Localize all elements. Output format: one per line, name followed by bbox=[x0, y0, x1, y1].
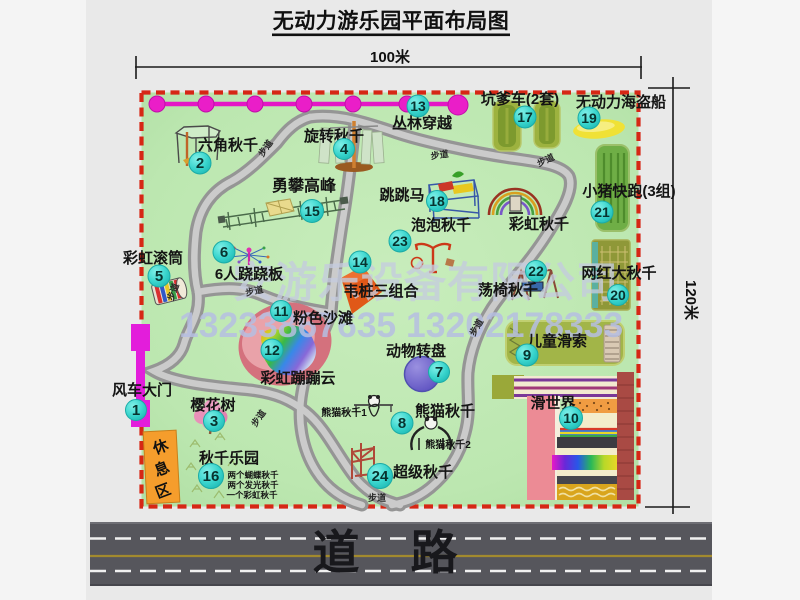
svg-text:丛林穿越: 丛林穿越 bbox=[392, 114, 453, 132]
svg-text:风车大门: 风车大门 bbox=[112, 381, 172, 399]
svg-text:熊猫秋千2: 熊猫秋千2 bbox=[425, 438, 471, 451]
svg-text:一个彩虹秋千: 一个彩虹秋千 bbox=[226, 490, 278, 500]
svg-text:荡椅秋千: 荡椅秋千 bbox=[478, 281, 538, 299]
svg-text:4: 4 bbox=[340, 141, 349, 158]
svg-text:1: 1 bbox=[132, 402, 140, 419]
svg-text:2: 2 bbox=[196, 155, 204, 172]
svg-text:网红大秋千: 网红大秋千 bbox=[581, 264, 656, 282]
svg-text:彩虹蹦蹦云: 彩虹蹦蹦云 bbox=[259, 369, 335, 387]
svg-text:彩虹秋千: 彩虹秋千 bbox=[508, 215, 569, 233]
svg-text:21: 21 bbox=[594, 204, 610, 220]
svg-text:韦桩三组合: 韦桩三组合 bbox=[343, 282, 419, 300]
svg-text:六角秋千: 六角秋千 bbox=[198, 136, 258, 154]
svg-text:粉色沙滩: 粉色沙滩 bbox=[293, 309, 353, 327]
svg-text:超级秋千: 超级秋千 bbox=[392, 463, 453, 481]
svg-text:8: 8 bbox=[398, 415, 406, 432]
svg-text:无动力游乐园平面布局图: 无动力游乐园平面布局图 bbox=[273, 9, 510, 33]
svg-text:17: 17 bbox=[517, 109, 533, 125]
svg-text:24: 24 bbox=[372, 468, 389, 485]
svg-text:15: 15 bbox=[304, 203, 320, 219]
svg-text:9: 9 bbox=[523, 347, 531, 364]
svg-text:两个发光秋千: 两个发光秋千 bbox=[227, 480, 279, 490]
svg-text:道: 道 bbox=[313, 526, 360, 579]
svg-text:19: 19 bbox=[581, 110, 597, 126]
svg-text:坑爹车(2套): 坑爹车(2套) bbox=[481, 90, 559, 108]
svg-text:泡泡秋千: 泡泡秋千 bbox=[411, 216, 471, 234]
svg-text:22: 22 bbox=[528, 263, 544, 279]
svg-text:100米: 100米 bbox=[370, 48, 411, 66]
svg-text:18: 18 bbox=[429, 193, 445, 209]
svg-text:120米: 120米 bbox=[682, 280, 700, 321]
svg-text:10: 10 bbox=[563, 410, 579, 426]
svg-text:熊猫秋千1: 熊猫秋千1 bbox=[321, 406, 367, 419]
svg-text:步道: 步道 bbox=[368, 492, 386, 503]
svg-text:路: 路 bbox=[411, 526, 459, 579]
svg-text:7: 7 bbox=[435, 364, 443, 381]
svg-text:3: 3 bbox=[210, 413, 218, 430]
svg-text:6: 6 bbox=[220, 244, 228, 261]
svg-text:23: 23 bbox=[392, 233, 408, 249]
svg-text:6人跷跷板: 6人跷跷板 bbox=[215, 265, 284, 283]
svg-text:旋转秋千: 旋转秋千 bbox=[303, 127, 364, 145]
svg-text:两个蝴蝶秋千: 两个蝴蝶秋千 bbox=[227, 470, 279, 480]
svg-text:16: 16 bbox=[203, 468, 220, 485]
svg-text:20: 20 bbox=[610, 287, 626, 303]
svg-text:安游乐设备有限公司: 安游乐设备有限公司 bbox=[232, 259, 619, 306]
svg-text:12: 12 bbox=[264, 342, 280, 358]
svg-text:勇攀高峰: 勇攀高峰 bbox=[272, 176, 337, 195]
svg-text:彩虹滚筒: 彩虹滚筒 bbox=[122, 249, 183, 267]
svg-text:动物转盘: 动物转盘 bbox=[386, 342, 446, 360]
svg-text:小猪快跑(3组): 小猪快跑(3组) bbox=[582, 182, 675, 200]
svg-text:14: 14 bbox=[352, 254, 368, 270]
svg-text:13: 13 bbox=[410, 98, 426, 114]
svg-text:熊猫秋千: 熊猫秋千 bbox=[415, 402, 475, 420]
svg-text:11: 11 bbox=[274, 303, 289, 319]
svg-text:5: 5 bbox=[155, 268, 163, 285]
svg-text:跳跳马: 跳跳马 bbox=[379, 186, 424, 204]
